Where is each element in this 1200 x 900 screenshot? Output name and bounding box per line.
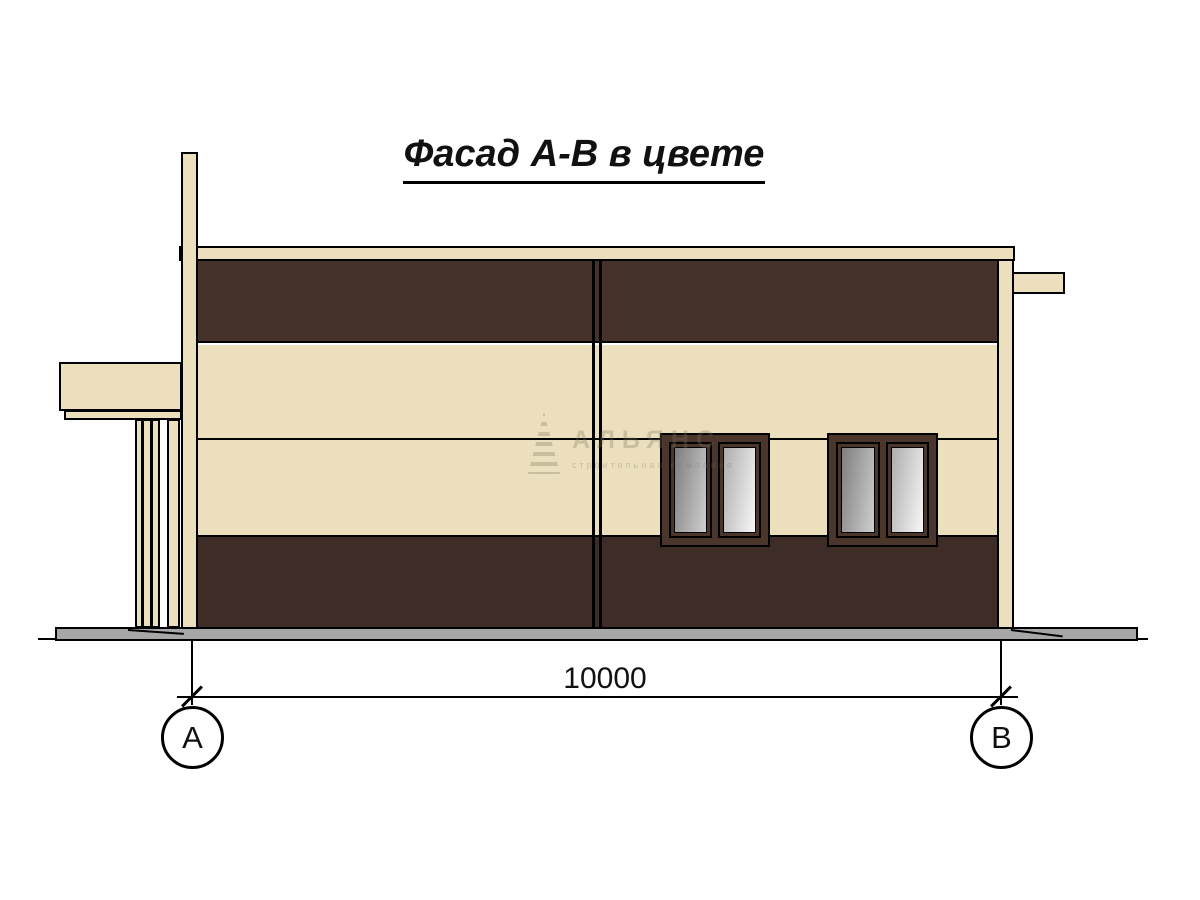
canopy-support-slats bbox=[133, 419, 180, 628]
window-right-pane-1 bbox=[836, 442, 880, 538]
canopy-slat bbox=[167, 419, 180, 628]
window-right bbox=[827, 433, 938, 547]
axis-marker-b: В bbox=[970, 706, 1033, 769]
window-right-glass-1 bbox=[841, 447, 875, 533]
canopy-slat bbox=[151, 419, 160, 628]
drawing-title: Фасад А-В в цвете bbox=[403, 133, 765, 184]
watermark-triangle-logo-icon bbox=[528, 412, 560, 474]
left-pilaster-chimney bbox=[181, 152, 198, 631]
watermark: АЛЬЯНС строительная компания bbox=[528, 412, 735, 474]
watermark-text: АЛЬЯНС строительная компания bbox=[572, 412, 735, 470]
window-right-glass-2 bbox=[891, 447, 925, 533]
canopy-fascia-strip bbox=[64, 410, 182, 420]
watermark-company-name: АЛЬЯНС bbox=[572, 426, 735, 455]
wall-band-top-brown bbox=[197, 261, 998, 343]
dimension-value: 10000 bbox=[405, 662, 805, 696]
facade-drawing: Фасад А-В в цвете bbox=[0, 0, 1200, 900]
right-roof-ledge bbox=[1012, 272, 1065, 294]
roof-fascia-band bbox=[179, 246, 1015, 261]
axis-marker-a: А bbox=[161, 706, 224, 769]
canopy-roof-slab bbox=[59, 362, 182, 411]
wall-band-bottom-brown bbox=[197, 537, 998, 630]
ground-blind-area bbox=[55, 627, 1138, 641]
right-pilaster bbox=[997, 259, 1014, 631]
dimension-line bbox=[177, 696, 1018, 698]
watermark-tagline: строительная компания bbox=[572, 460, 735, 470]
window-right-pane-2 bbox=[886, 442, 930, 538]
